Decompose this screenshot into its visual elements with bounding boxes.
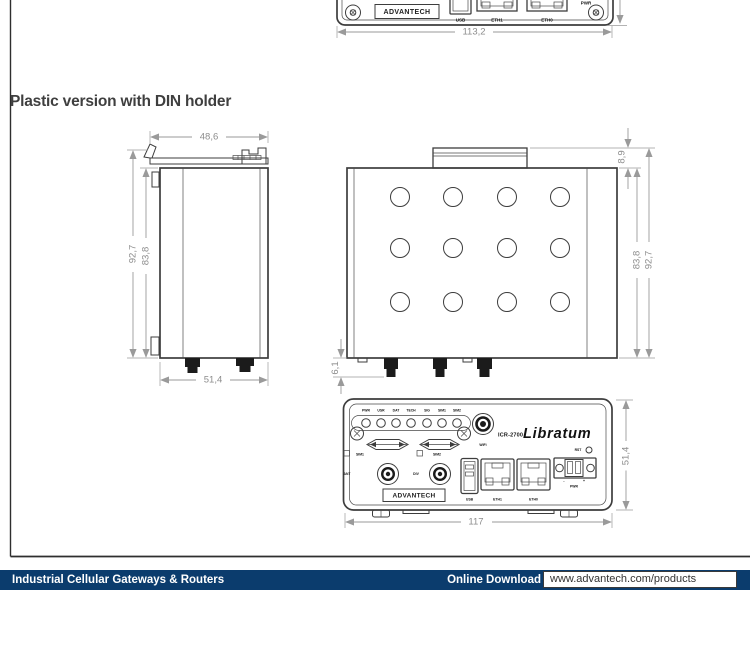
dimension-83-8: 83,8 [140,168,158,357]
page-border [11,0,750,557]
rst-label: RST [575,448,583,452]
dimension-right-cutoff [607,0,627,26]
side-view-drawing: 48,6 92,7 83,8 51,4 [127,131,268,386]
svg-text:51,4: 51,4 [621,447,632,466]
usb-label: USB [456,18,466,23]
din-clip-profile [144,144,268,164]
model-text: ICR-2700 [498,432,523,438]
svg-text:TECH: TECH [406,408,416,412]
footer-category-title: Industrial Cellular Gateways & Routers [12,570,224,590]
top-partial-drawing: ADVANTECH USB ETH1 ETH0 PWR [337,0,627,38]
wifi-antenna-connector [473,414,494,435]
bottom-connectors [358,358,492,377]
eth1-port [481,459,514,490]
bottom-connectors [185,358,254,373]
eth0-label: ETH0 [529,497,538,501]
dimension-6-1: 6,1 [330,339,384,394]
vent-holes [391,188,570,312]
eth1-port [477,0,517,11]
power-terminal [554,458,596,478]
svg-text:8,9: 8,9 [617,150,628,163]
sim-slot-1 [367,440,408,450]
svg-text:83,8: 83,8 [632,251,643,270]
sim2-eject-icon [417,451,423,457]
sim1-eject-icon [344,451,350,457]
sim-slot-2 [420,440,459,450]
svg-text:113,2: 113,2 [462,27,485,38]
eth0-label: ETH0 [541,18,553,23]
svg-text:6,1: 6,1 [330,361,341,374]
section-heading: Plastic version with DIN holder [10,93,231,111]
led-indicators [362,419,462,428]
ant-sma-connector [378,464,399,485]
svg-text:83,8: 83,8 [141,247,152,266]
pwr-label: PWR [570,484,578,488]
dimension-117: 117 [345,513,612,528]
footer-bar: Industrial Cellular Gateways & Routers O… [0,570,750,590]
datasheet-page: ADVANTECH USB ETH1 ETH0 PWR [0,0,750,650]
dimension-51-4-front: 51,4 [616,400,633,510]
screw-icon [458,427,471,440]
usb-label: USB [466,497,474,501]
pwr-label: PWR [581,1,592,6]
footer-download-label: Online Download [447,570,541,590]
svg-text:PWR: PWR [362,408,370,412]
dimension-92-7-top: 92,7 [644,149,655,357]
top-view-drawing: 8,9 83,8 92,7 6,1 [330,128,655,394]
advantech-logo: ADVANTECH [383,489,445,502]
svg-text:SIG: SIG [424,408,430,412]
svg-text:USR: USR [377,408,385,412]
svg-text:SIM2: SIM2 [453,408,461,412]
led-labels: PWR USR DAT TECH SIG SIM1 SIM2 [362,408,461,412]
ant-label: ANT [344,472,352,476]
minus-label: - [563,479,564,483]
svg-text:SIM1: SIM1 [438,408,446,412]
reset-button-hole [586,447,592,453]
svg-text:117: 117 [468,517,483,528]
sim2-label: SIM2 [433,452,441,456]
screw-icon [346,5,361,20]
sim1-label: SIM1 [356,452,364,456]
eth0-port [527,0,567,11]
dimension-48-6: 48,6 [150,131,268,143]
svg-text:51,4: 51,4 [204,375,223,386]
svg-text:48,6: 48,6 [200,132,219,143]
advantech-logo-text: ADVANTECH [383,9,430,16]
advantech-logo: ADVANTECH [375,5,439,19]
dimension-8-9: 8,9 [530,128,655,189]
eth0-port [517,459,550,490]
product-name-text: Libratum [523,426,591,442]
div-sma-connector [430,464,451,485]
footer-url-link[interactable]: www.advantech.com/products [543,571,737,588]
screw-icon [351,427,364,440]
svg-text:92,7: 92,7 [128,245,139,264]
eth1-label: ETH1 [493,497,502,501]
svg-text:ADVANTECH: ADVANTECH [392,493,435,500]
plus-label: + [583,479,585,483]
div-label: DIV [413,472,419,476]
screw-icon [589,5,604,20]
front-view-drawing: PWR USR DAT TECH SIG SIM1 SIM2 [344,399,634,528]
svg-text:DAT: DAT [393,408,401,412]
dimension-113-2: 113,2 [337,26,612,38]
wifi-label: WiFi [479,443,486,447]
svg-text:92,7: 92,7 [644,251,655,270]
eth1-label: ETH1 [491,18,503,23]
usb-port [450,0,471,14]
usb-port [461,459,478,494]
